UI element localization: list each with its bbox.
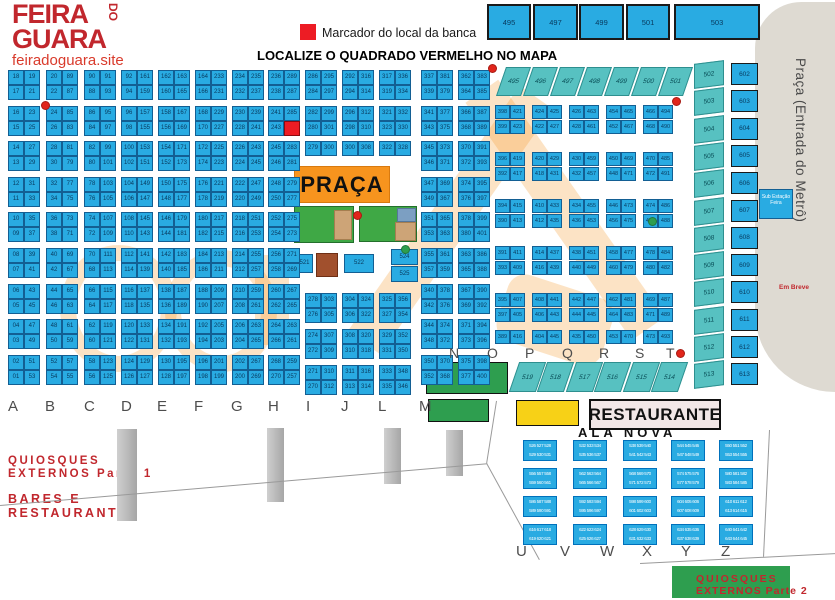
stall-cell: 444 <box>569 308 584 322</box>
stall-cell: 488 <box>658 214 673 228</box>
stall-cell: 50 <box>46 334 62 349</box>
stall-cell-600s: 607 <box>731 200 758 222</box>
stall-cell: 371 <box>458 319 474 334</box>
stall-cell: 186 <box>195 263 211 278</box>
stall-cell: 351 <box>421 212 437 227</box>
stall-cell: 160 <box>158 85 174 100</box>
aisle-letter: U <box>516 543 527 560</box>
stall-cell: 165 <box>174 85 190 100</box>
stall-cell: 48 <box>46 319 62 334</box>
stall-cell: 120 <box>121 319 137 334</box>
stall-cell: 131 <box>137 334 153 349</box>
stall-cell: 348 <box>421 334 437 349</box>
stall-cell: 306 <box>342 308 358 323</box>
stall-cell: 103 <box>100 177 116 192</box>
stall-cell: 117 <box>100 299 116 314</box>
stall-cell: 229 <box>211 106 227 121</box>
stall-cell: 409 <box>510 261 525 275</box>
stall-cell: 470 <box>643 152 658 166</box>
stall-cell: 182 <box>195 227 211 242</box>
stall-cell: 416 <box>510 330 525 344</box>
stall-cell: 487 <box>658 293 673 307</box>
ala-nova-block: 532 533 534535 536 537 <box>573 440 607 461</box>
stall-cell: 304 <box>342 293 358 308</box>
stall-cell: 147 <box>137 192 153 207</box>
stall-cell-teal: 507 <box>694 197 724 226</box>
stall-cell: 27 <box>24 141 40 156</box>
stall-cell-600s: 604 <box>731 118 758 140</box>
stall-cell: 374 <box>458 177 474 192</box>
stall-cell: 167 <box>174 106 190 121</box>
stall-cell: 428 <box>569 120 584 134</box>
stall-cell: 430 <box>569 152 584 166</box>
stall-cell: 478 <box>643 246 658 260</box>
map-title: LOCALIZE O QUADRADO VERMELHO NO MAPA <box>257 48 557 63</box>
ala-nova-block: 604 605 606607 608 609 <box>671 496 705 517</box>
stall-cell: 390 <box>474 284 490 299</box>
stall-cell: 114 <box>121 263 137 278</box>
stall-cell: 196 <box>195 355 211 370</box>
stall-cell: 248 <box>268 177 284 192</box>
stall-cell: 255 <box>248 248 264 263</box>
stall-cell: 278 <box>305 293 321 308</box>
stall-cell: 14 <box>8 141 24 156</box>
stall-cell: 195 <box>174 355 190 370</box>
stall-cell: 370 <box>458 141 474 156</box>
aisle-letter: S <box>635 345 644 361</box>
stall-cell: 69 <box>62 248 78 263</box>
stall-cell: 211 <box>211 263 227 278</box>
stall-cell: 494 <box>658 105 673 119</box>
stall-cell: 220 <box>232 192 248 207</box>
stall-cell: 85 <box>62 106 78 121</box>
pillar <box>446 430 463 476</box>
aisle-letter: B <box>45 398 55 415</box>
stall-cell: 343 <box>421 121 437 136</box>
stall-cell: 325 <box>379 293 395 308</box>
stall-cell: 261 <box>284 334 300 349</box>
stall-cell: 214 <box>232 248 248 263</box>
stall-cell: 280 <box>305 121 321 136</box>
stall-cell: 136 <box>158 299 174 314</box>
stall-cell: 245 <box>248 156 264 171</box>
stall-cell: 287 <box>284 85 300 100</box>
praca-green-block-2 <box>359 206 417 242</box>
stall-cell: 253 <box>248 227 264 242</box>
stall-cell: 263 <box>284 319 300 334</box>
stall-cell: 269 <box>284 263 300 278</box>
pillar <box>267 428 284 502</box>
stall-cell: 352 <box>421 370 437 385</box>
ala-nova-block: 616 617 618619 620 621 <box>523 524 557 545</box>
stall-cell: 33 <box>24 192 40 207</box>
stall-cell: 334 <box>395 85 411 100</box>
stall-cell: 137 <box>137 284 153 299</box>
stall-cell: 173 <box>174 156 190 171</box>
stall-cell: 262 <box>268 299 284 314</box>
stall-cell: 176 <box>195 177 211 192</box>
aisle-letter: C <box>84 398 95 415</box>
stall-cell: 100 <box>121 141 137 156</box>
stall-cell: 222 <box>232 177 248 192</box>
aisle-letter: J <box>341 398 349 415</box>
stall-cell: 448 <box>606 167 621 181</box>
green-area-small <box>428 399 489 422</box>
stall-cell: 419 <box>510 152 525 166</box>
stall-cell: 425 <box>547 105 562 119</box>
stall-cell: 413 <box>510 214 525 228</box>
stall-cell: 177 <box>174 192 190 207</box>
stall-cell: 204 <box>232 334 248 349</box>
stall-cell: 15 <box>8 121 24 136</box>
stall-cell: 264 <box>268 319 284 334</box>
stall-cell: 73 <box>62 212 78 227</box>
stall-cell: 54 <box>46 370 62 385</box>
stall-cell: 70 <box>84 248 100 263</box>
stall-cell: 187 <box>174 284 190 299</box>
stall-cell: 200 <box>232 370 248 385</box>
stall-cell: 372 <box>458 156 474 171</box>
quiosques-parte1-line1: QUIOSQUES <box>8 455 100 468</box>
stall-cell: 368 <box>437 370 453 385</box>
stall-cell: 321 <box>379 106 395 121</box>
stall-cell: 265 <box>248 334 264 349</box>
aisle-letter: D <box>121 398 132 415</box>
stall-cell: 230 <box>232 106 248 121</box>
ala-nova-block: 622 623 624625 626 627 <box>573 524 607 545</box>
aisle-letter: O <box>487 345 498 361</box>
stall-cell: 427 <box>547 120 562 134</box>
stall-cell: 438 <box>569 246 584 260</box>
stall-cell: 231 <box>211 85 227 100</box>
stall-cell: 90 <box>84 70 100 85</box>
stall-cell: 397 <box>495 308 510 322</box>
stall-cell: 91 <box>100 70 116 85</box>
aisle-letter: E <box>157 398 167 415</box>
stall-cell: 178 <box>195 192 211 207</box>
stall-cell: 324 <box>358 293 374 308</box>
stall-cell: 181 <box>174 227 190 242</box>
stall-cell: 329 <box>379 329 395 344</box>
stall-cell: 375 <box>437 121 453 136</box>
stall-cell: 26 <box>46 121 62 136</box>
stall-cell: 369 <box>437 177 453 192</box>
stall-cell: 51 <box>24 355 40 370</box>
stall-cell: 171 <box>174 141 190 156</box>
stall-cell: 190 <box>195 299 211 314</box>
stall-cell: 260 <box>268 284 284 299</box>
stall-cell: 388 <box>474 263 490 278</box>
stall-cell: 04 <box>8 319 24 334</box>
stall-cell: 437 <box>547 246 562 260</box>
stall-cell: 303 <box>321 293 337 308</box>
stall-cell: 474 <box>643 199 658 213</box>
stall-cell: 392 <box>495 167 510 181</box>
stall-cell: 86 <box>84 106 100 121</box>
stall-cell: 135 <box>137 299 153 314</box>
stall-cell: 225 <box>211 141 227 156</box>
stall-cell: 263 <box>248 319 264 334</box>
stall-cell: 277 <box>284 192 300 207</box>
stall-cell: 197 <box>174 370 190 385</box>
stall-cell: 320 <box>358 329 374 344</box>
aisle-letter: F <box>194 398 203 415</box>
stall-cell: 37 <box>24 227 40 242</box>
pillar <box>384 428 401 484</box>
stall-cell: 300 <box>342 141 358 156</box>
stall-cell-teal: 505 <box>694 142 724 171</box>
stall-cell: 189 <box>174 299 190 314</box>
stall-cell: 381 <box>437 70 453 85</box>
stall-cell: 365 <box>458 263 474 278</box>
stall-cell-teal: 509 <box>694 251 724 280</box>
stall-cell: 431 <box>547 167 562 181</box>
stall-cell: 67 <box>62 263 78 278</box>
stall-cell: 241 <box>248 121 264 136</box>
aisle-letter: X <box>642 543 652 560</box>
stall-cell: 72 <box>84 227 100 242</box>
stall-cell: 98 <box>121 121 137 136</box>
stall-cell: 473 <box>621 199 636 213</box>
stall-cell: 133 <box>137 319 153 334</box>
aisle-letter: Z <box>721 543 730 560</box>
stall-cell: 219 <box>211 192 227 207</box>
stall-cell: 363 <box>437 227 453 242</box>
stall-cell: 243 <box>248 141 264 156</box>
stall-cell: 424 <box>532 105 547 119</box>
stall-cell: 201 <box>211 355 227 370</box>
stall-cell: 126 <box>121 370 137 385</box>
stall-cell: 295 <box>321 70 337 85</box>
stall-cell: 464 <box>606 308 621 322</box>
stall-cell: 389 <box>495 330 510 344</box>
boundary-line <box>640 553 835 564</box>
stall-cell: 17 <box>8 85 24 100</box>
stall-cell: 333 <box>379 365 395 380</box>
ala-nova-title: ALA NOVA <box>578 425 676 440</box>
stall-cell: 323 <box>379 121 395 136</box>
stall-cell: 74 <box>84 212 100 227</box>
stall-cell: 271 <box>284 248 300 263</box>
ala-nova-block: 628 629 630631 632 633 <box>623 524 657 545</box>
stall-cell: 458 <box>606 246 621 260</box>
stall-cell: 166 <box>195 85 211 100</box>
stall-cell: 247 <box>248 177 264 192</box>
stall-cell: 489 <box>658 308 673 322</box>
stall-cell-522: 522 <box>344 254 374 273</box>
stall-cell: 236 <box>268 70 284 85</box>
stall-cell: 314 <box>358 380 374 395</box>
stall-cell: 107 <box>100 212 116 227</box>
stall-cell: 93 <box>100 85 116 100</box>
stall-cell: 310 <box>321 365 337 380</box>
stall-cell: 365 <box>437 212 453 227</box>
stall-cell: 387 <box>474 106 490 121</box>
stall-cell: 269 <box>248 370 264 385</box>
stall-cell: 274 <box>305 329 321 344</box>
stall-cell: 97 <box>100 121 116 136</box>
stall-cell: 32 <box>46 177 62 192</box>
stall-cell: 305 <box>321 308 337 323</box>
stall-cell: 331 <box>379 344 395 359</box>
stall-cell: 47 <box>24 319 40 334</box>
marker-dot-red <box>676 349 685 358</box>
stall-cell: 215 <box>211 227 227 242</box>
quiosques-parte2-line1: QUIOSQUES <box>696 573 778 585</box>
stall-cell: 399 <box>495 120 510 134</box>
stall-cell: 254 <box>268 227 284 242</box>
stall-cell: 404 <box>532 330 547 344</box>
stall-cell: 79 <box>62 156 78 171</box>
stall-cell: 346 <box>395 380 411 395</box>
stall-cell: 484 <box>658 246 673 260</box>
stall-cell: 226 <box>232 141 248 156</box>
stall-cell: 238 <box>268 85 284 100</box>
logo-site-url: feiradoguara.site <box>12 52 124 69</box>
stall-cell: 140 <box>158 263 174 278</box>
stall-cell: 124 <box>121 355 137 370</box>
legend-text: Marcador do local da banca <box>322 26 476 40</box>
stall-cell: 115 <box>100 284 116 299</box>
stall-cell: 268 <box>268 355 284 370</box>
stall-cell: 150 <box>158 177 174 192</box>
stall-cell: 391 <box>474 141 490 156</box>
stall-cell: 68 <box>84 263 100 278</box>
stall-cell: 452 <box>606 120 621 134</box>
stall-cell: 162 <box>158 70 174 85</box>
stall-cell-big: 501 <box>626 4 670 40</box>
praca-block: PRAÇA <box>294 166 390 203</box>
stall-cell: 249 <box>248 192 264 207</box>
marker-dot-red <box>488 64 497 73</box>
stall-cell: 414 <box>532 246 547 260</box>
stall-cell: 400 <box>474 370 490 385</box>
stall-cell: 461 <box>584 120 599 134</box>
stall-cell: 175 <box>174 177 190 192</box>
stall-cell: 401 <box>474 227 490 242</box>
stall-cell: 02 <box>8 355 24 370</box>
stall-cell-525: 525 <box>391 266 418 282</box>
stall-cell: 42 <box>46 263 62 278</box>
stall-cell: 415 <box>510 199 525 213</box>
praca-brown-cell <box>316 253 338 277</box>
stall-cell: 289 <box>284 70 300 85</box>
stall-cell: 426 <box>569 105 584 119</box>
stall-cell: 422 <box>532 120 547 134</box>
stall-cell: 34 <box>46 192 62 207</box>
stall-cell: 368 <box>458 121 474 136</box>
stall-cell: 216 <box>232 227 248 242</box>
stall-cell: 441 <box>547 293 562 307</box>
stall-cell: 267 <box>248 355 264 370</box>
legend-marker-square <box>300 24 316 40</box>
stall-cell: 294 <box>342 85 358 100</box>
stall-cell: 23 <box>24 106 40 121</box>
stall-cell: 311 <box>342 365 358 380</box>
stall-cell: 451 <box>584 246 599 260</box>
stall-cell: 20 <box>46 70 62 85</box>
stall-cell-600s: 606 <box>731 172 758 194</box>
stall-cell: 446 <box>606 199 621 213</box>
stall-cell: 486 <box>658 199 673 213</box>
stall-cell: 111 <box>100 248 116 263</box>
stall-cell: 143 <box>137 227 153 242</box>
pillar <box>117 429 137 521</box>
ala-nova-block: 562 563 564565 566 567 <box>573 468 607 489</box>
stall-cell: 30 <box>46 156 62 171</box>
stall-cell: 275 <box>284 212 300 227</box>
stall-cell: 279 <box>305 141 321 156</box>
stall-cell: 455 <box>584 199 599 213</box>
stall-cell: 41 <box>24 263 40 278</box>
stall-cell: 420 <box>532 152 547 166</box>
stall-cell: 410 <box>532 199 547 213</box>
stall-cell: 390 <box>495 214 510 228</box>
stall-cell: 87 <box>62 85 78 100</box>
stall-cell-teal: 504 <box>694 115 724 144</box>
stall-cell: 88 <box>84 85 100 100</box>
stall-cell: 11 <box>8 192 24 207</box>
aisle-letter: Y <box>681 543 691 560</box>
stall-cell: 212 <box>232 263 248 278</box>
stall-cell: 308 <box>342 329 358 344</box>
stall-cell: 271 <box>305 365 321 380</box>
stall-cell: 456 <box>606 214 621 228</box>
stall-cell: 163 <box>174 70 190 85</box>
stall-cell: 374 <box>437 319 453 334</box>
stall-cell: 296 <box>342 106 358 121</box>
stall-cell: 65 <box>62 284 78 299</box>
stall-cell: 12 <box>8 177 24 192</box>
stall-cell: 435 <box>547 214 562 228</box>
stall-cell: 282 <box>305 106 321 121</box>
stall-cell: 224 <box>232 156 248 171</box>
stall-cell: 393 <box>495 261 510 275</box>
stall-cell: 112 <box>121 248 137 263</box>
stall-cell: 127 <box>137 370 153 385</box>
stall-cell: 258 <box>268 263 284 278</box>
stall-cell: 106 <box>121 192 137 207</box>
stall-cell: 122 <box>121 334 137 349</box>
stall-cell: 394 <box>474 319 490 334</box>
aisle-letter: M <box>419 398 432 415</box>
stall-cell: 314 <box>358 85 374 100</box>
stall-cell: 89 <box>62 70 78 85</box>
stall-cell: 152 <box>158 156 174 171</box>
stall-cell: 367 <box>458 284 474 299</box>
stall-cell: 463 <box>584 105 599 119</box>
stall-cell: 477 <box>621 246 636 260</box>
stall-cell: 359 <box>437 263 453 278</box>
stall-cell: 318 <box>358 344 374 359</box>
stall-cell: 217 <box>211 212 227 227</box>
stall-cell: 157 <box>137 106 153 121</box>
ala-nova-block: 592 593 594595 596 597 <box>573 496 607 517</box>
aisle-letter: W <box>600 543 614 560</box>
stall-cell: 265 <box>284 299 300 314</box>
stall-cell: 251 <box>248 212 264 227</box>
stall-cell: 257 <box>248 263 264 278</box>
stall-cell: 385 <box>474 85 490 100</box>
stall-cell: 38 <box>46 227 62 242</box>
stall-cell: 377 <box>437 106 453 121</box>
stall-cell: 192 <box>195 319 211 334</box>
stall-cell: 335 <box>379 380 395 395</box>
stall-cell: 55 <box>62 370 78 385</box>
stall-cell: 183 <box>174 248 190 263</box>
stall-cell: 440 <box>569 261 584 275</box>
stall-cell: 350 <box>421 355 437 370</box>
